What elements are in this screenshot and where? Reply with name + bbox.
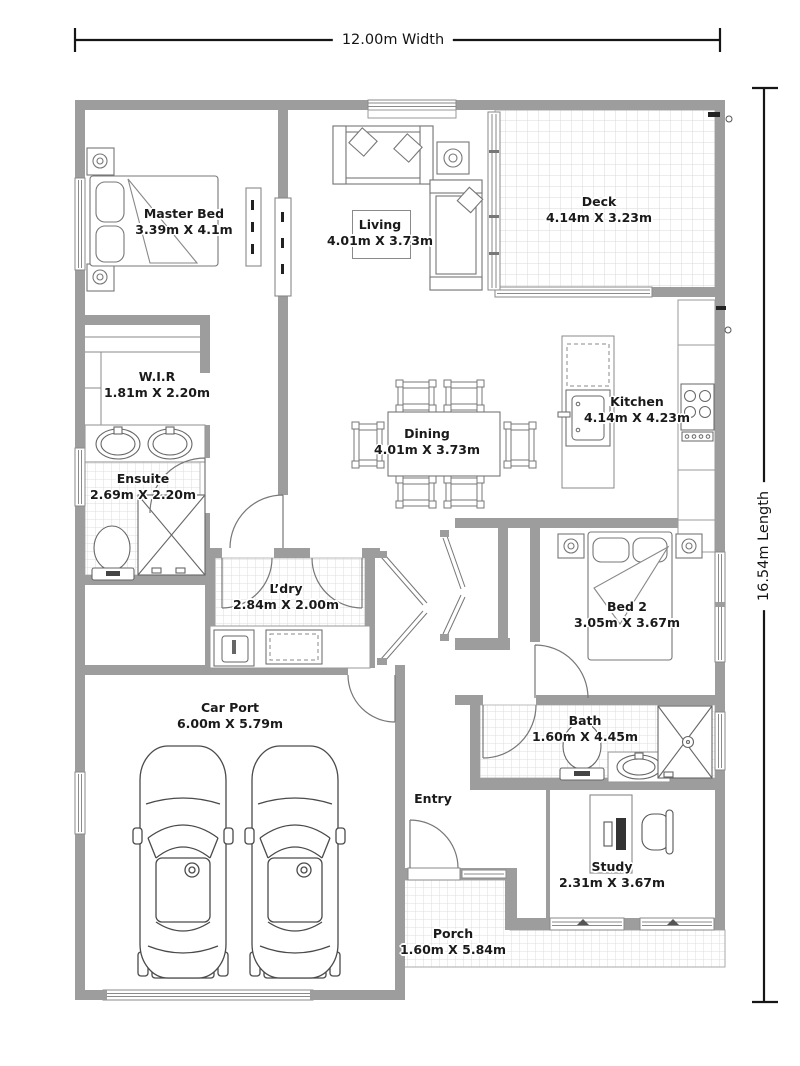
room-label-deck: Deck 4.14m X 3.23m bbox=[546, 194, 652, 227]
length-dimension-label: 16.54m Length bbox=[756, 482, 772, 610]
room-dims: 2.69m X 2.20m bbox=[90, 487, 196, 503]
room-name: Master Bed bbox=[135, 206, 232, 222]
room-name: Deck bbox=[546, 194, 652, 210]
room-name: Living bbox=[327, 217, 433, 233]
room-name: Bed 2 bbox=[574, 599, 680, 615]
room-dims: 2.84m X 2.00m bbox=[233, 597, 339, 613]
room-label-entry: Entry bbox=[414, 791, 452, 807]
carport-cars bbox=[133, 746, 345, 978]
room-label-porch: Porch 1.60m X 5.84m bbox=[400, 926, 506, 959]
width-dimension-label: 12.00m Width bbox=[333, 32, 453, 48]
room-dims: 6.00m X 5.79m bbox=[177, 716, 283, 732]
room-name: Entry bbox=[414, 791, 452, 807]
room-dims: 1.60m X 5.84m bbox=[400, 942, 506, 958]
floor-plan-drawing bbox=[0, 0, 800, 1066]
room-name: Dining bbox=[374, 426, 480, 442]
room-label-bath: Bath 1.60m X 4.45m bbox=[532, 713, 638, 746]
living-furniture bbox=[333, 126, 483, 290]
bed2-furniture bbox=[558, 532, 702, 660]
room-dims: 3.05m X 3.67m bbox=[574, 615, 680, 631]
closet-bifold-doors bbox=[377, 530, 465, 665]
room-label-kitchen: Kitchen 4.14m X 4.23m bbox=[584, 394, 690, 427]
room-dims: 4.14m X 4.23m bbox=[584, 410, 690, 426]
room-dims: 4.14m X 3.23m bbox=[546, 210, 652, 226]
room-name: Bath bbox=[532, 713, 638, 729]
room-label-master-bed: Master Bed 3.39m X 4.1m bbox=[135, 206, 232, 239]
floor-plan: Master Bed 3.39m X 4.1m Living 4.01m X 3… bbox=[0, 0, 800, 1066]
room-label-ensuite: Ensuite 2.69m X 2.20m bbox=[90, 471, 196, 504]
room-label-study: Study 2.31m X 3.67m bbox=[559, 859, 665, 892]
room-name: Study bbox=[559, 859, 665, 875]
room-name: W.I.R bbox=[104, 369, 210, 385]
room-dims: 3.39m X 4.1m bbox=[135, 222, 232, 238]
room-dims: 1.60m X 4.45m bbox=[532, 729, 638, 745]
room-name: L’dry bbox=[233, 581, 339, 597]
room-label-bed2: Bed 2 3.05m X 3.67m bbox=[574, 599, 680, 632]
room-dims: 1.81m X 2.20m bbox=[104, 385, 210, 401]
room-name: Ensuite bbox=[90, 471, 196, 487]
room-dims: 4.01m X 3.73m bbox=[327, 233, 433, 249]
room-label-ldry: L’dry 2.84m X 2.00m bbox=[233, 581, 339, 614]
laundry-fixtures bbox=[210, 626, 370, 668]
room-label-dining: Dining 4.01m X 3.73m bbox=[374, 426, 480, 459]
room-name: Car Port bbox=[177, 700, 283, 716]
room-name: Kitchen bbox=[584, 394, 690, 410]
room-label-car-port: Car Port 6.00m X 5.79m bbox=[177, 700, 283, 733]
room-label-living: Living 4.01m X 3.73m bbox=[327, 217, 433, 250]
room-label-wir: W.I.R 1.81m X 2.20m bbox=[104, 369, 210, 402]
room-name: Porch bbox=[400, 926, 506, 942]
room-dims: 2.31m X 3.67m bbox=[559, 875, 665, 891]
room-dims: 4.01m X 3.73m bbox=[374, 442, 480, 458]
